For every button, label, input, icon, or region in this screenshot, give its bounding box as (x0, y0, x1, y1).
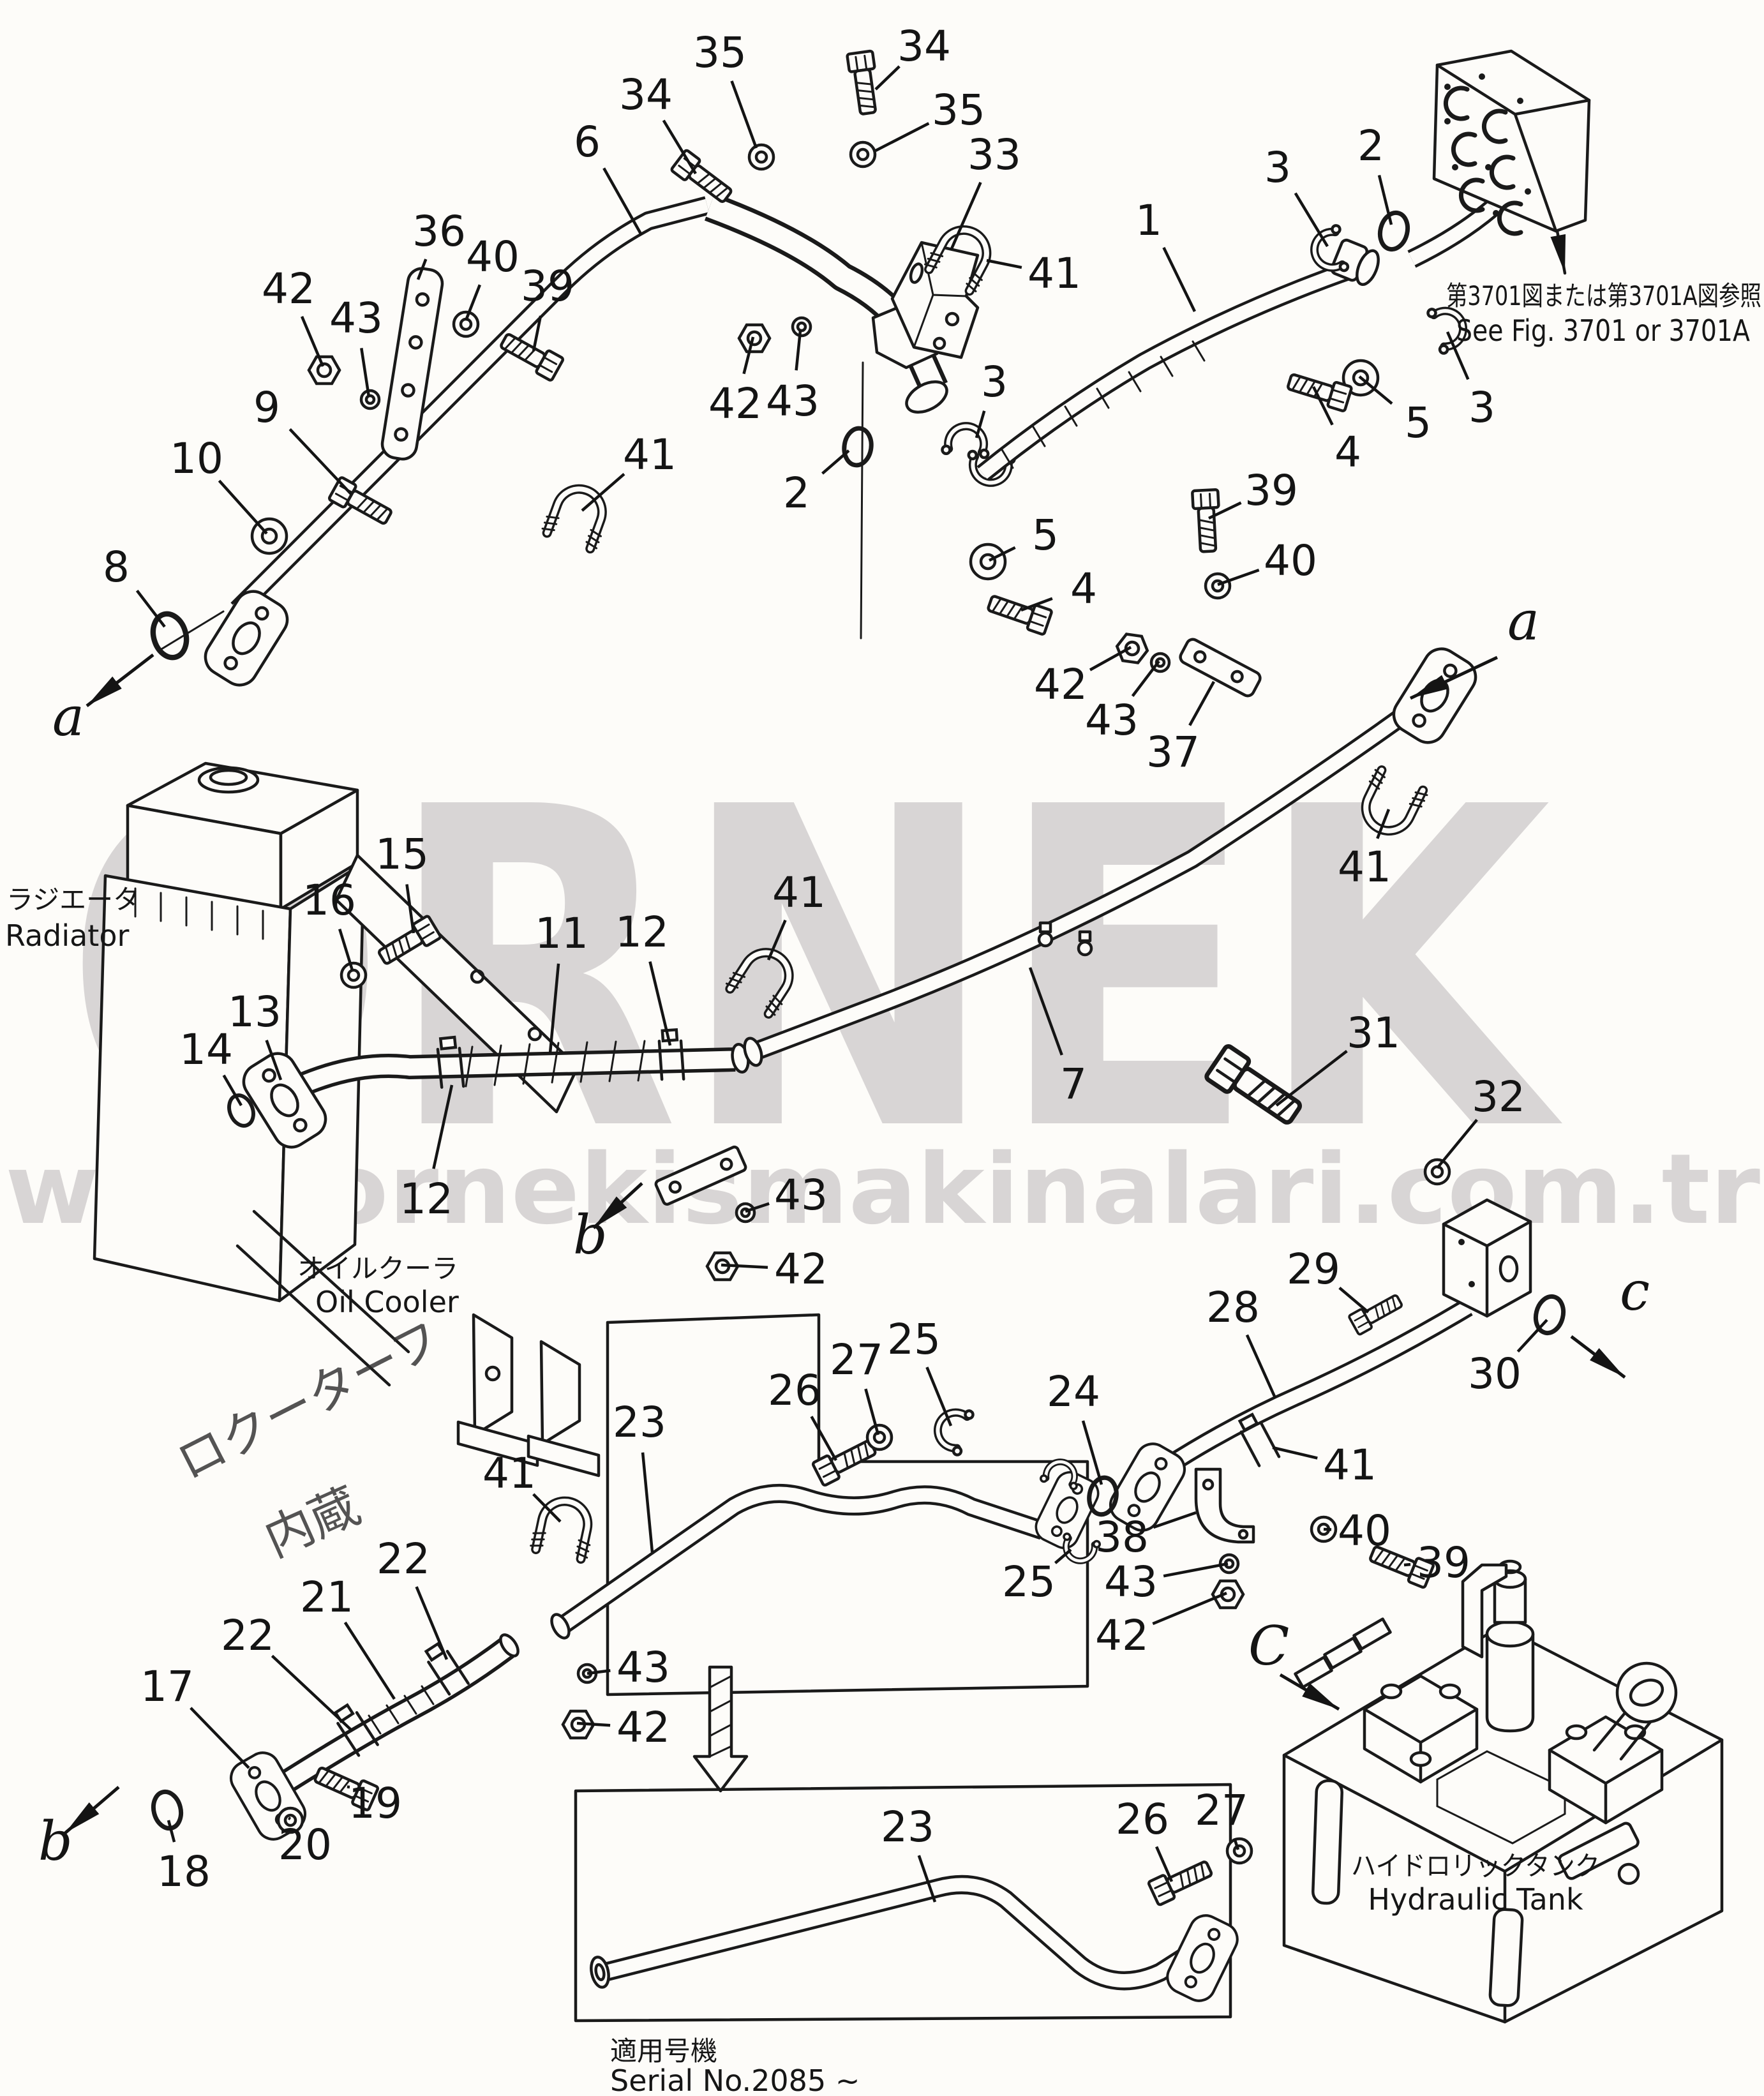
callout-43: 43 (329, 294, 383, 343)
clamp-3-left (942, 424, 990, 458)
callout-41: 41 (482, 1449, 536, 1498)
callout-9: 9 (253, 383, 280, 432)
callout-42: 42 (1095, 1611, 1149, 1660)
callout-13: 13 (228, 987, 281, 1037)
ref-note-jp: 第3701図または第3701A図参照 (1446, 280, 1761, 311)
leader-line-35 (876, 123, 929, 151)
view-letter-C: C (1248, 1615, 1289, 1677)
callout-27: 27 (1195, 1786, 1248, 1835)
down-arrow (694, 1667, 747, 1791)
leader-line-24 (1083, 1421, 1102, 1485)
washer-35-right (851, 142, 875, 167)
o-ring-2-left (842, 426, 874, 467)
flange-pipe6 (198, 585, 294, 692)
callout-3: 3 (1264, 143, 1291, 192)
view-letter-a: a (52, 685, 84, 748)
callout-19: 19 (348, 1779, 402, 1828)
callout-23: 23 (881, 1802, 934, 1852)
callout-6: 6 (574, 117, 601, 167)
nut-42-bottom (1213, 1581, 1243, 1608)
callout-31: 31 (1347, 1008, 1400, 1058)
bolt-4-top (1286, 369, 1352, 411)
bolt-4-mid (986, 591, 1052, 635)
view-letter-b: b (573, 1204, 608, 1266)
washer-40-top (454, 312, 478, 336)
callout-32: 32 (1472, 1072, 1525, 1121)
callout-36: 36 (412, 207, 466, 256)
leader-line-2 (823, 451, 849, 474)
callout-12: 12 (615, 908, 669, 957)
tank-slot-front (1490, 1909, 1523, 2006)
leader-line-8 (137, 590, 165, 627)
callout-43: 43 (766, 377, 819, 426)
washer-5-mid (971, 544, 1005, 579)
callout-27: 27 (830, 1335, 883, 1384)
leader-line-34 (876, 66, 899, 89)
bracket-37 (1178, 637, 1262, 698)
callout-11: 11 (535, 909, 588, 958)
callout-40: 40 (466, 232, 519, 281)
bolt-39-top (498, 329, 564, 381)
callout-29: 29 (1287, 1245, 1340, 1294)
callout-39: 39 (1417, 1538, 1470, 1587)
bolt-34-top (847, 51, 881, 116)
leader-line-29 (1340, 1288, 1368, 1312)
leader-line-35 (731, 81, 756, 148)
callout-41: 41 (623, 430, 676, 479)
callout-10: 10 (170, 434, 223, 483)
tank-breather (1487, 1634, 1533, 1731)
callout-28: 28 (1206, 1283, 1260, 1332)
leader-line-43 (1163, 1564, 1228, 1576)
nut-42-center (739, 325, 770, 352)
callout-23: 23 (613, 1398, 666, 1447)
leader-line-10 (219, 481, 267, 534)
callout-8: 8 (103, 543, 130, 592)
callout-30: 30 (1468, 1349, 1521, 1398)
clamp-25-upper (932, 1403, 974, 1456)
callout-40: 40 (1338, 1506, 1391, 1555)
callout-39: 39 (521, 262, 574, 311)
leader-line-43 (1133, 661, 1159, 696)
parts-diagram-canvas: ORNEK www.ornekismakinalari.com.tr (0, 0, 1764, 2096)
leader-line-43 (361, 348, 369, 397)
tank-label-jp: ハイドロリックタンク (1351, 1850, 1600, 1882)
washer-43-center (793, 318, 811, 336)
hydraulic-tank (1284, 1561, 1722, 2022)
cooler-leg-right (541, 1342, 579, 1444)
callout-37: 37 (1146, 728, 1200, 777)
view-letter-c: c (1620, 1260, 1650, 1322)
washer-32 (1425, 1160, 1449, 1184)
view-letter-a: a (1507, 590, 1539, 652)
callout-40: 40 (1264, 536, 1317, 585)
callout-41: 41 (772, 868, 826, 917)
leader-line-33 (951, 183, 981, 250)
callout-39: 39 (1245, 466, 1298, 515)
callout-3: 3 (981, 357, 1008, 407)
callout-2: 2 (783, 468, 810, 518)
ref-note-en: See Fig. 3701 or 3701A (1456, 313, 1750, 348)
scanned-parts-diagram-page: ORNEK www.ornekismakinalari.com.tr (0, 0, 1764, 2096)
tank-label-en: Hydraulic Tank (1368, 1882, 1583, 1917)
leader-line-22 (272, 1656, 352, 1731)
callout-38: 38 (1095, 1513, 1149, 1562)
callout-26: 26 (1116, 1795, 1169, 1844)
o-ring-18 (150, 1789, 185, 1831)
callout-4: 4 (1070, 564, 1097, 613)
suction-hose-assembly (150, 1632, 521, 1845)
leader-line-42 (302, 317, 323, 366)
callout-12: 12 (400, 1174, 453, 1224)
callout-43: 43 (617, 1643, 670, 1692)
callout-2: 2 (1357, 121, 1384, 170)
nut-42-top (309, 357, 340, 384)
bolt-39-mid (1192, 490, 1221, 552)
handwritten-note-line2: 内蔵 (256, 1476, 368, 1568)
callout-35: 35 (693, 28, 747, 77)
callout-42: 42 (774, 1245, 828, 1294)
tank-slot-left (1313, 1780, 1343, 1903)
leader-line-42 (1153, 1593, 1227, 1624)
leader-line-40 (1324, 1529, 1331, 1530)
callout-42: 42 (262, 264, 315, 313)
view-arrow-c (1571, 1336, 1625, 1377)
callout-41: 41 (1323, 1441, 1377, 1490)
washer-43-top (361, 391, 379, 408)
callout-4: 4 (1334, 428, 1361, 477)
callout-42: 42 (1034, 660, 1088, 709)
pipe7-plug-b (1079, 932, 1091, 955)
callout-22: 22 (377, 1534, 430, 1583)
washer-16 (341, 963, 366, 987)
callout-18: 18 (157, 1847, 211, 1896)
washer-27-lower (1227, 1839, 1252, 1863)
leader-line-23 (643, 1453, 652, 1552)
leader-line-18 (168, 1820, 174, 1842)
view-arrow-b (65, 1787, 119, 1833)
callout-26: 26 (768, 1366, 821, 1415)
leader-line-30 (1518, 1320, 1547, 1352)
tank-tabs (1295, 1619, 1390, 1688)
callout-41: 41 (1338, 842, 1391, 892)
callout-35: 35 (932, 86, 985, 135)
leader-line-39 (1404, 1564, 1410, 1565)
leader-line-17 (191, 1708, 249, 1768)
callout-43: 43 (774, 1171, 828, 1220)
washer-35-left (749, 145, 774, 169)
callout-5: 5 (1405, 398, 1431, 447)
o-ring-2-top (1377, 210, 1412, 252)
cooler-leg-left (474, 1315, 512, 1435)
leader-line-26 (811, 1416, 836, 1460)
fitting-29 (1349, 1291, 1405, 1335)
washer-43-mid (736, 1204, 754, 1222)
leader-line-21 (345, 1622, 394, 1699)
leader-line-1 (1163, 248, 1195, 311)
pipe7-plug-a (1039, 923, 1052, 946)
nut-42 (1115, 633, 1149, 664)
callout-24: 24 (1047, 1367, 1100, 1416)
washer-40-mid (1206, 574, 1230, 598)
callout-43: 43 (1104, 1557, 1158, 1606)
callout-15: 15 (375, 830, 429, 879)
callout-1: 1 (1135, 196, 1162, 245)
callout-42: 42 (708, 379, 762, 428)
callout-43: 43 (1085, 696, 1139, 745)
leader-line-41 (987, 260, 1022, 267)
callout-16: 16 (303, 876, 356, 925)
oil-cooler-label-jp: オイルクーラ (297, 1253, 458, 1284)
callout-41: 41 (1028, 249, 1081, 298)
handwritten-note-line1: ロクーターフ (168, 1310, 451, 1491)
callout-14: 14 (179, 1025, 233, 1074)
callout-21: 21 (300, 1573, 354, 1622)
callout-25: 25 (887, 1315, 941, 1364)
callout-3: 3 (1469, 383, 1495, 432)
callout-33: 33 (968, 130, 1021, 179)
callout-5: 5 (1032, 511, 1059, 560)
bolt-26-lower (1148, 1857, 1215, 1906)
strap-36 (380, 267, 444, 461)
serial-note-en: Serial No.2085 ~ (610, 2063, 860, 2096)
leader-line-9 (290, 429, 351, 494)
callout-7: 7 (1060, 1059, 1087, 1109)
view-letter-b: b (38, 1810, 73, 1873)
u-bolt-41-box (530, 1496, 597, 1561)
radiator-label-jp: ラジエータ (6, 884, 140, 915)
view-arrow-a (87, 655, 153, 706)
callout-25: 25 (1002, 1557, 1056, 1606)
leader-line-28 (1247, 1335, 1275, 1398)
radiator-label-en: Radiator (5, 918, 129, 953)
callout-42: 42 (617, 1703, 670, 1752)
callout-17: 17 (140, 1662, 194, 1711)
serial-note-jp: 適用号機 (610, 2035, 717, 2067)
washer-27-upper (867, 1425, 892, 1449)
clamp-25-b (1059, 1533, 1100, 1565)
callout-20: 20 (278, 1820, 332, 1869)
oil-cooler-label-en: Oil Cooler (315, 1285, 459, 1319)
leader-line-3 (1296, 193, 1327, 246)
callout-34: 34 (619, 70, 673, 119)
leader-line-20 (288, 1818, 290, 1819)
callout-34: 34 (897, 22, 951, 71)
leader-line-43 (796, 331, 800, 370)
callout-22: 22 (221, 1611, 274, 1660)
